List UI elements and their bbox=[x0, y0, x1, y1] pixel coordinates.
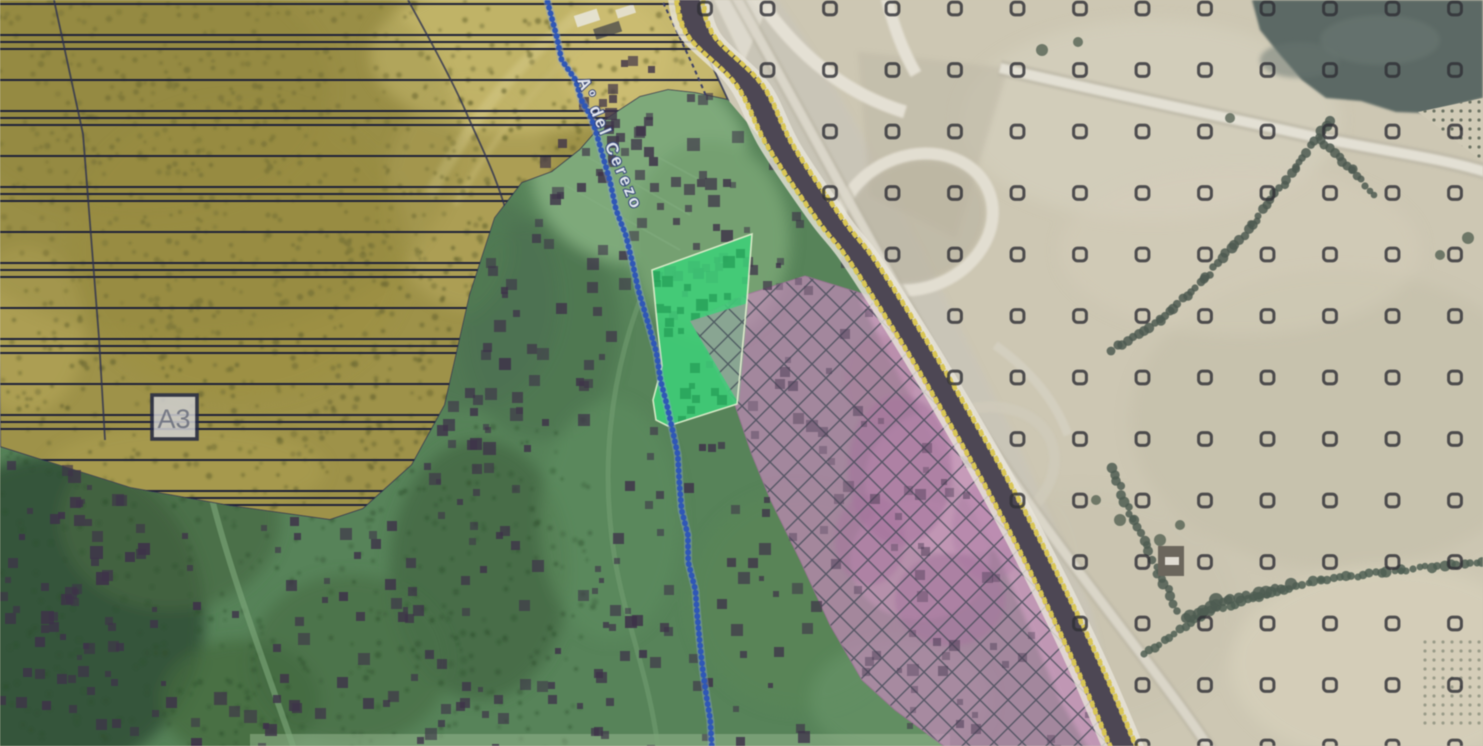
svg-text:A3: A3 bbox=[157, 404, 190, 434]
